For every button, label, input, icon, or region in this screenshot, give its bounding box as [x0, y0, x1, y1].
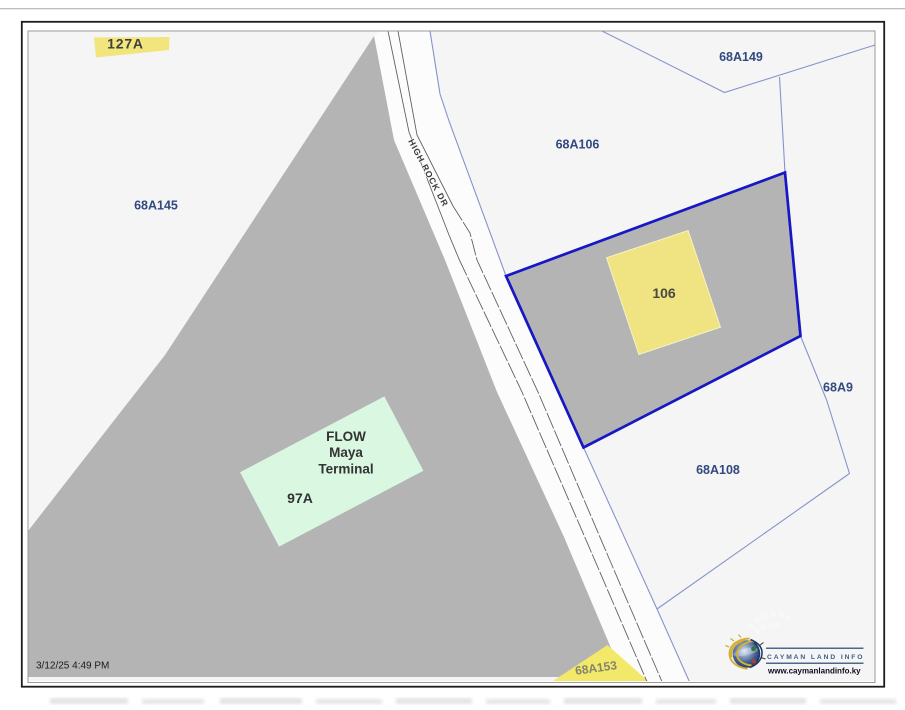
- svg-text:www.caymanlandinfo.ky: www.caymanlandinfo.ky: [767, 666, 861, 675]
- svg-text:FLOW: FLOW: [326, 429, 366, 444]
- svg-text:127A: 127A: [107, 36, 144, 52]
- svg-text:68A149: 68A149: [719, 50, 763, 64]
- svg-text:106: 106: [652, 285, 676, 301]
- svg-text:3/12/25 4:49 PM: 3/12/25 4:49 PM: [36, 661, 109, 672]
- svg-text:Maya: Maya: [329, 445, 363, 460]
- svg-text:Terminal: Terminal: [318, 462, 373, 477]
- svg-text:68A108: 68A108: [696, 463, 740, 477]
- svg-text:68A106: 68A106: [556, 138, 600, 152]
- svg-text:68A145: 68A145: [134, 199, 178, 213]
- svg-text:97A: 97A: [287, 490, 313, 506]
- svg-text:CAYMAN LAND INFO: CAYMAN LAND INFO: [767, 654, 864, 661]
- svg-text:68A9: 68A9: [823, 381, 853, 395]
